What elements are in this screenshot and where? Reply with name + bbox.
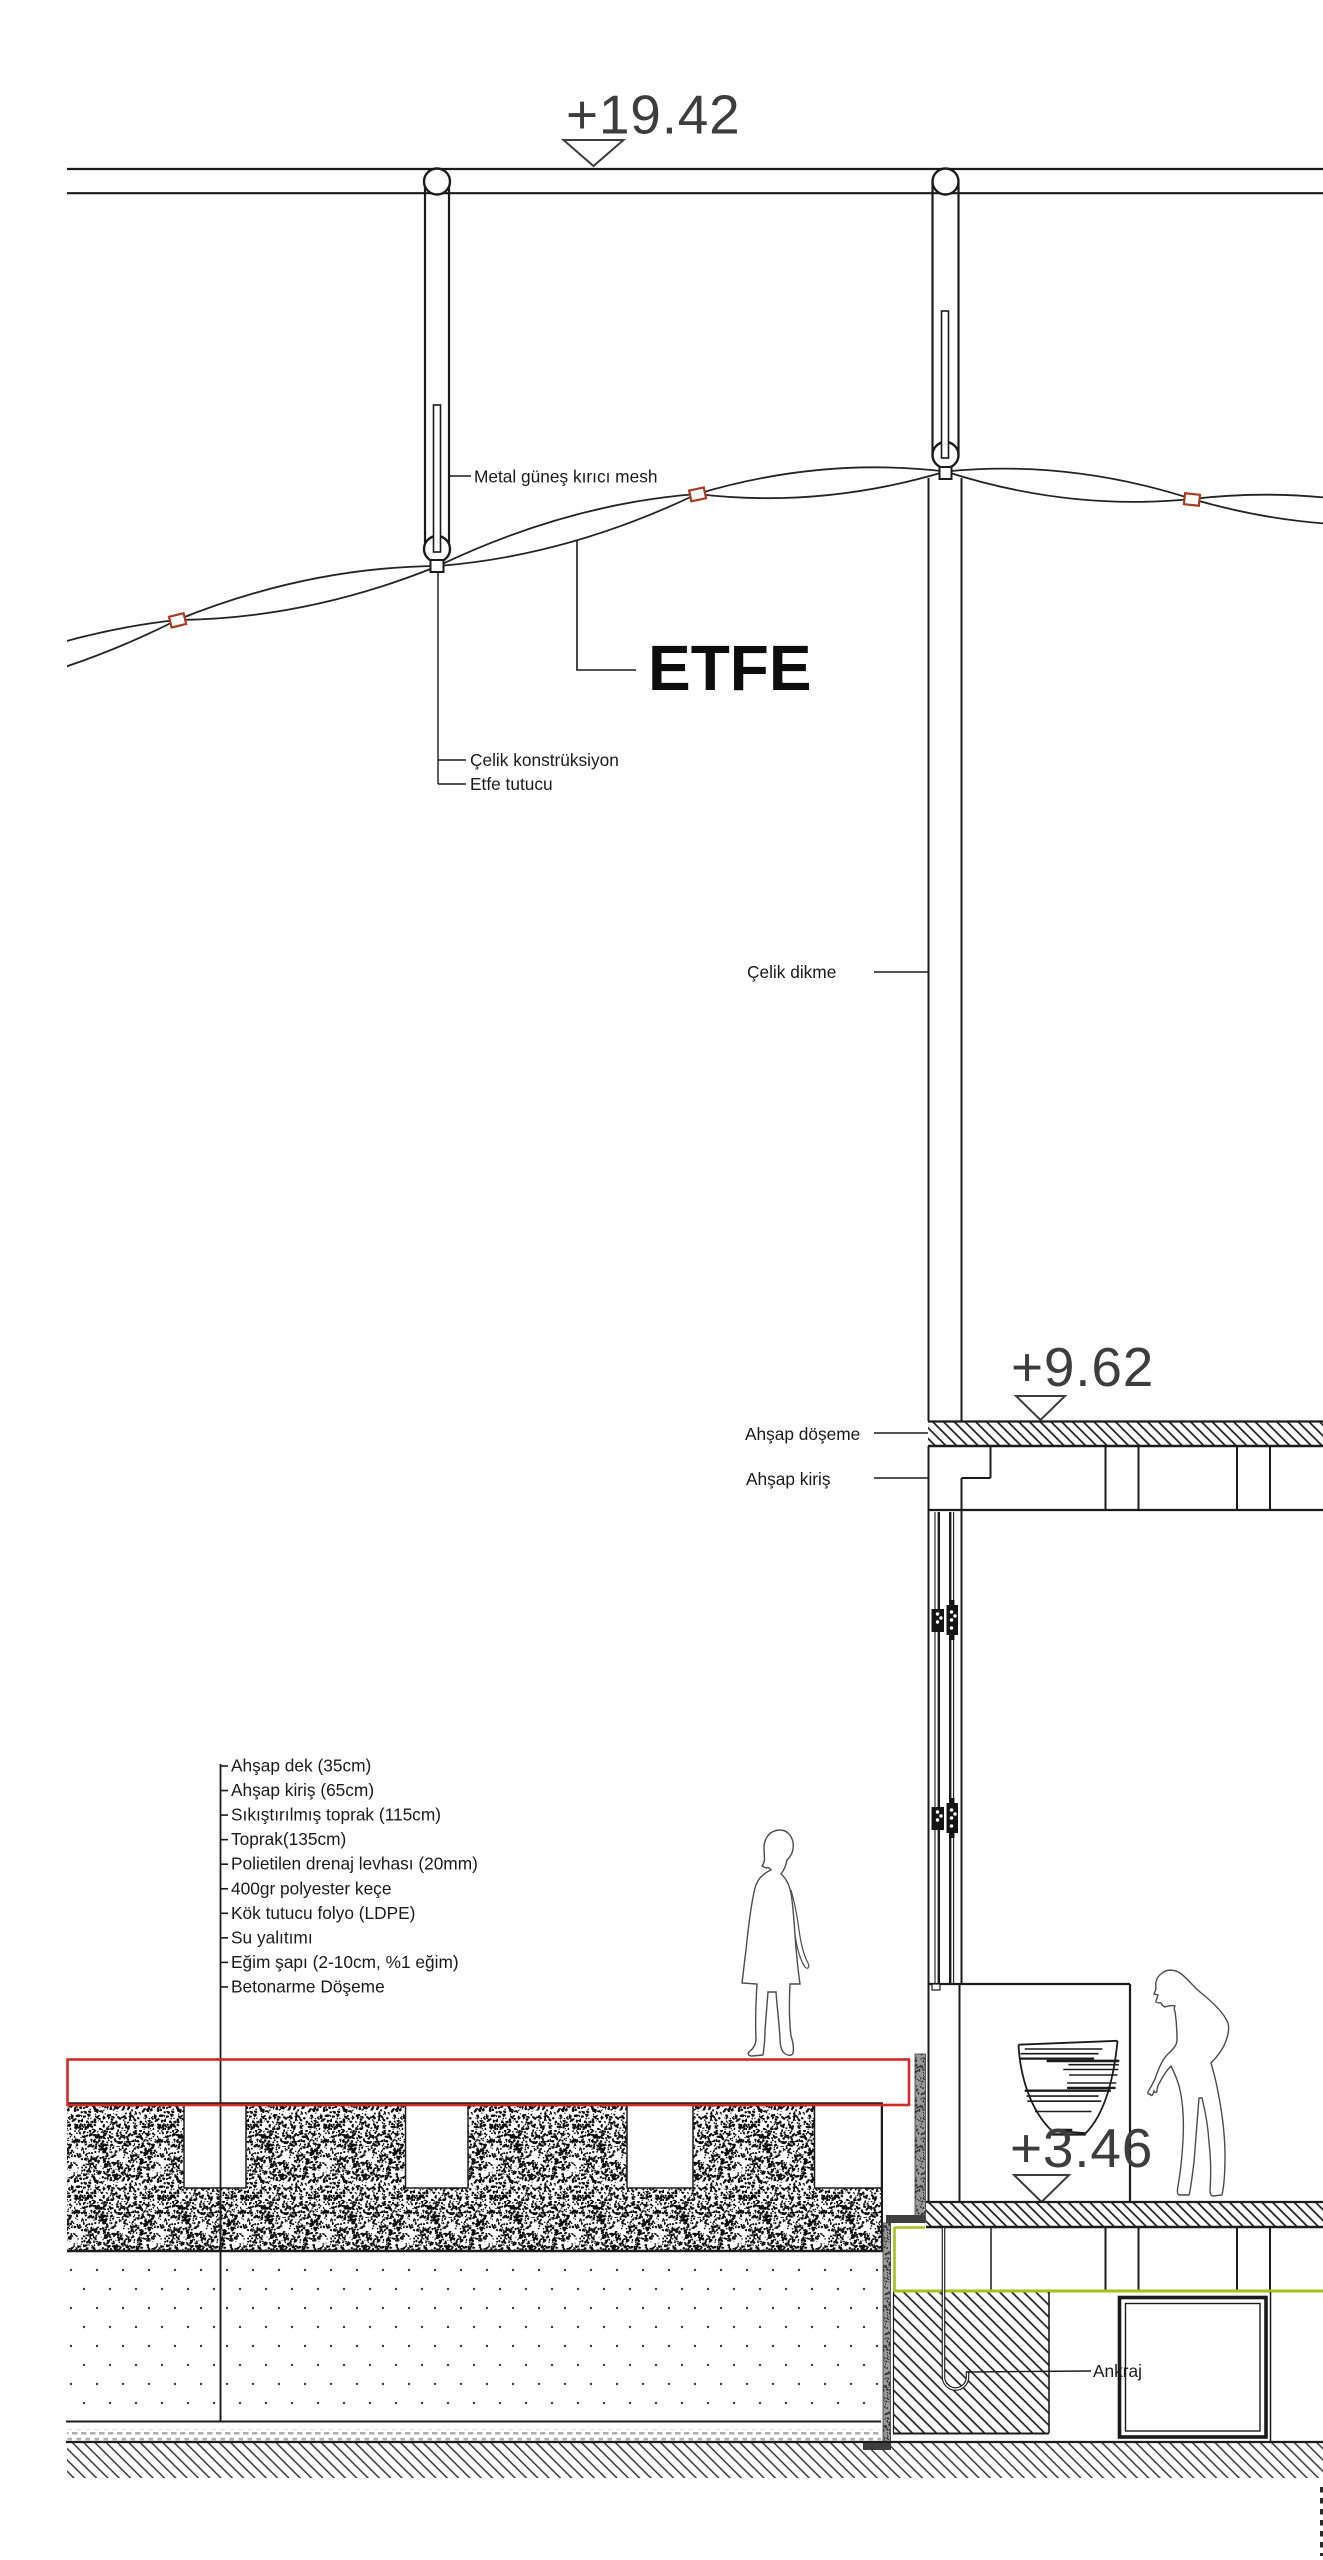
svg-text:Çelik konstrüksiyon: Çelik konstrüksiyon: [470, 750, 619, 770]
svg-text:Ahşap dek (35cm): Ahşap dek (35cm): [231, 1756, 371, 1776]
svg-text:Ahşap döşeme: Ahşap döşeme: [745, 1424, 860, 1444]
svg-text:+9.62: +9.62: [1011, 1336, 1154, 1398]
svg-text:Ankraj: Ankraj: [1093, 2361, 1142, 2381]
svg-text:Çelik dikme: Çelik dikme: [747, 962, 836, 982]
svg-text:Sıkıştırılmış toprak (115cm): Sıkıştırılmış toprak (115cm): [231, 1805, 441, 1825]
svg-text:+19.42: +19.42: [566, 84, 741, 146]
svg-text:Eğim şapı (2-10cm, %1 eğim): Eğim şapı (2-10cm, %1 eğim): [231, 1952, 459, 1972]
svg-text:400gr polyester keçe: 400gr polyester keçe: [231, 1878, 391, 1898]
svg-text:Polietilen drenaj levhası (20m: Polietilen drenaj levhası (20mm): [231, 1854, 478, 1874]
svg-text:Metal güneş kırıcı mesh: Metal güneş kırıcı mesh: [474, 467, 657, 487]
svg-text:Ahşap kiriş (65cm): Ahşap kiriş (65cm): [231, 1780, 374, 1800]
svg-text:+3.46: +3.46: [1010, 2117, 1153, 2179]
svg-text:Betonarme Döşeme: Betonarme Döşeme: [231, 1976, 385, 1996]
svg-text:Toprak(135cm): Toprak(135cm): [231, 1829, 346, 1849]
svg-text:Etfe tutucu: Etfe tutucu: [470, 774, 553, 794]
svg-text:Su yalıtımı: Su yalıtımı: [231, 1927, 313, 1947]
svg-text:ETFE: ETFE: [648, 632, 812, 704]
svg-text:Kök tutucu folyo (LDPE): Kök tutucu folyo (LDPE): [231, 1903, 415, 1923]
svg-text:Ahşap kiriş: Ahşap kiriş: [746, 1469, 831, 1489]
